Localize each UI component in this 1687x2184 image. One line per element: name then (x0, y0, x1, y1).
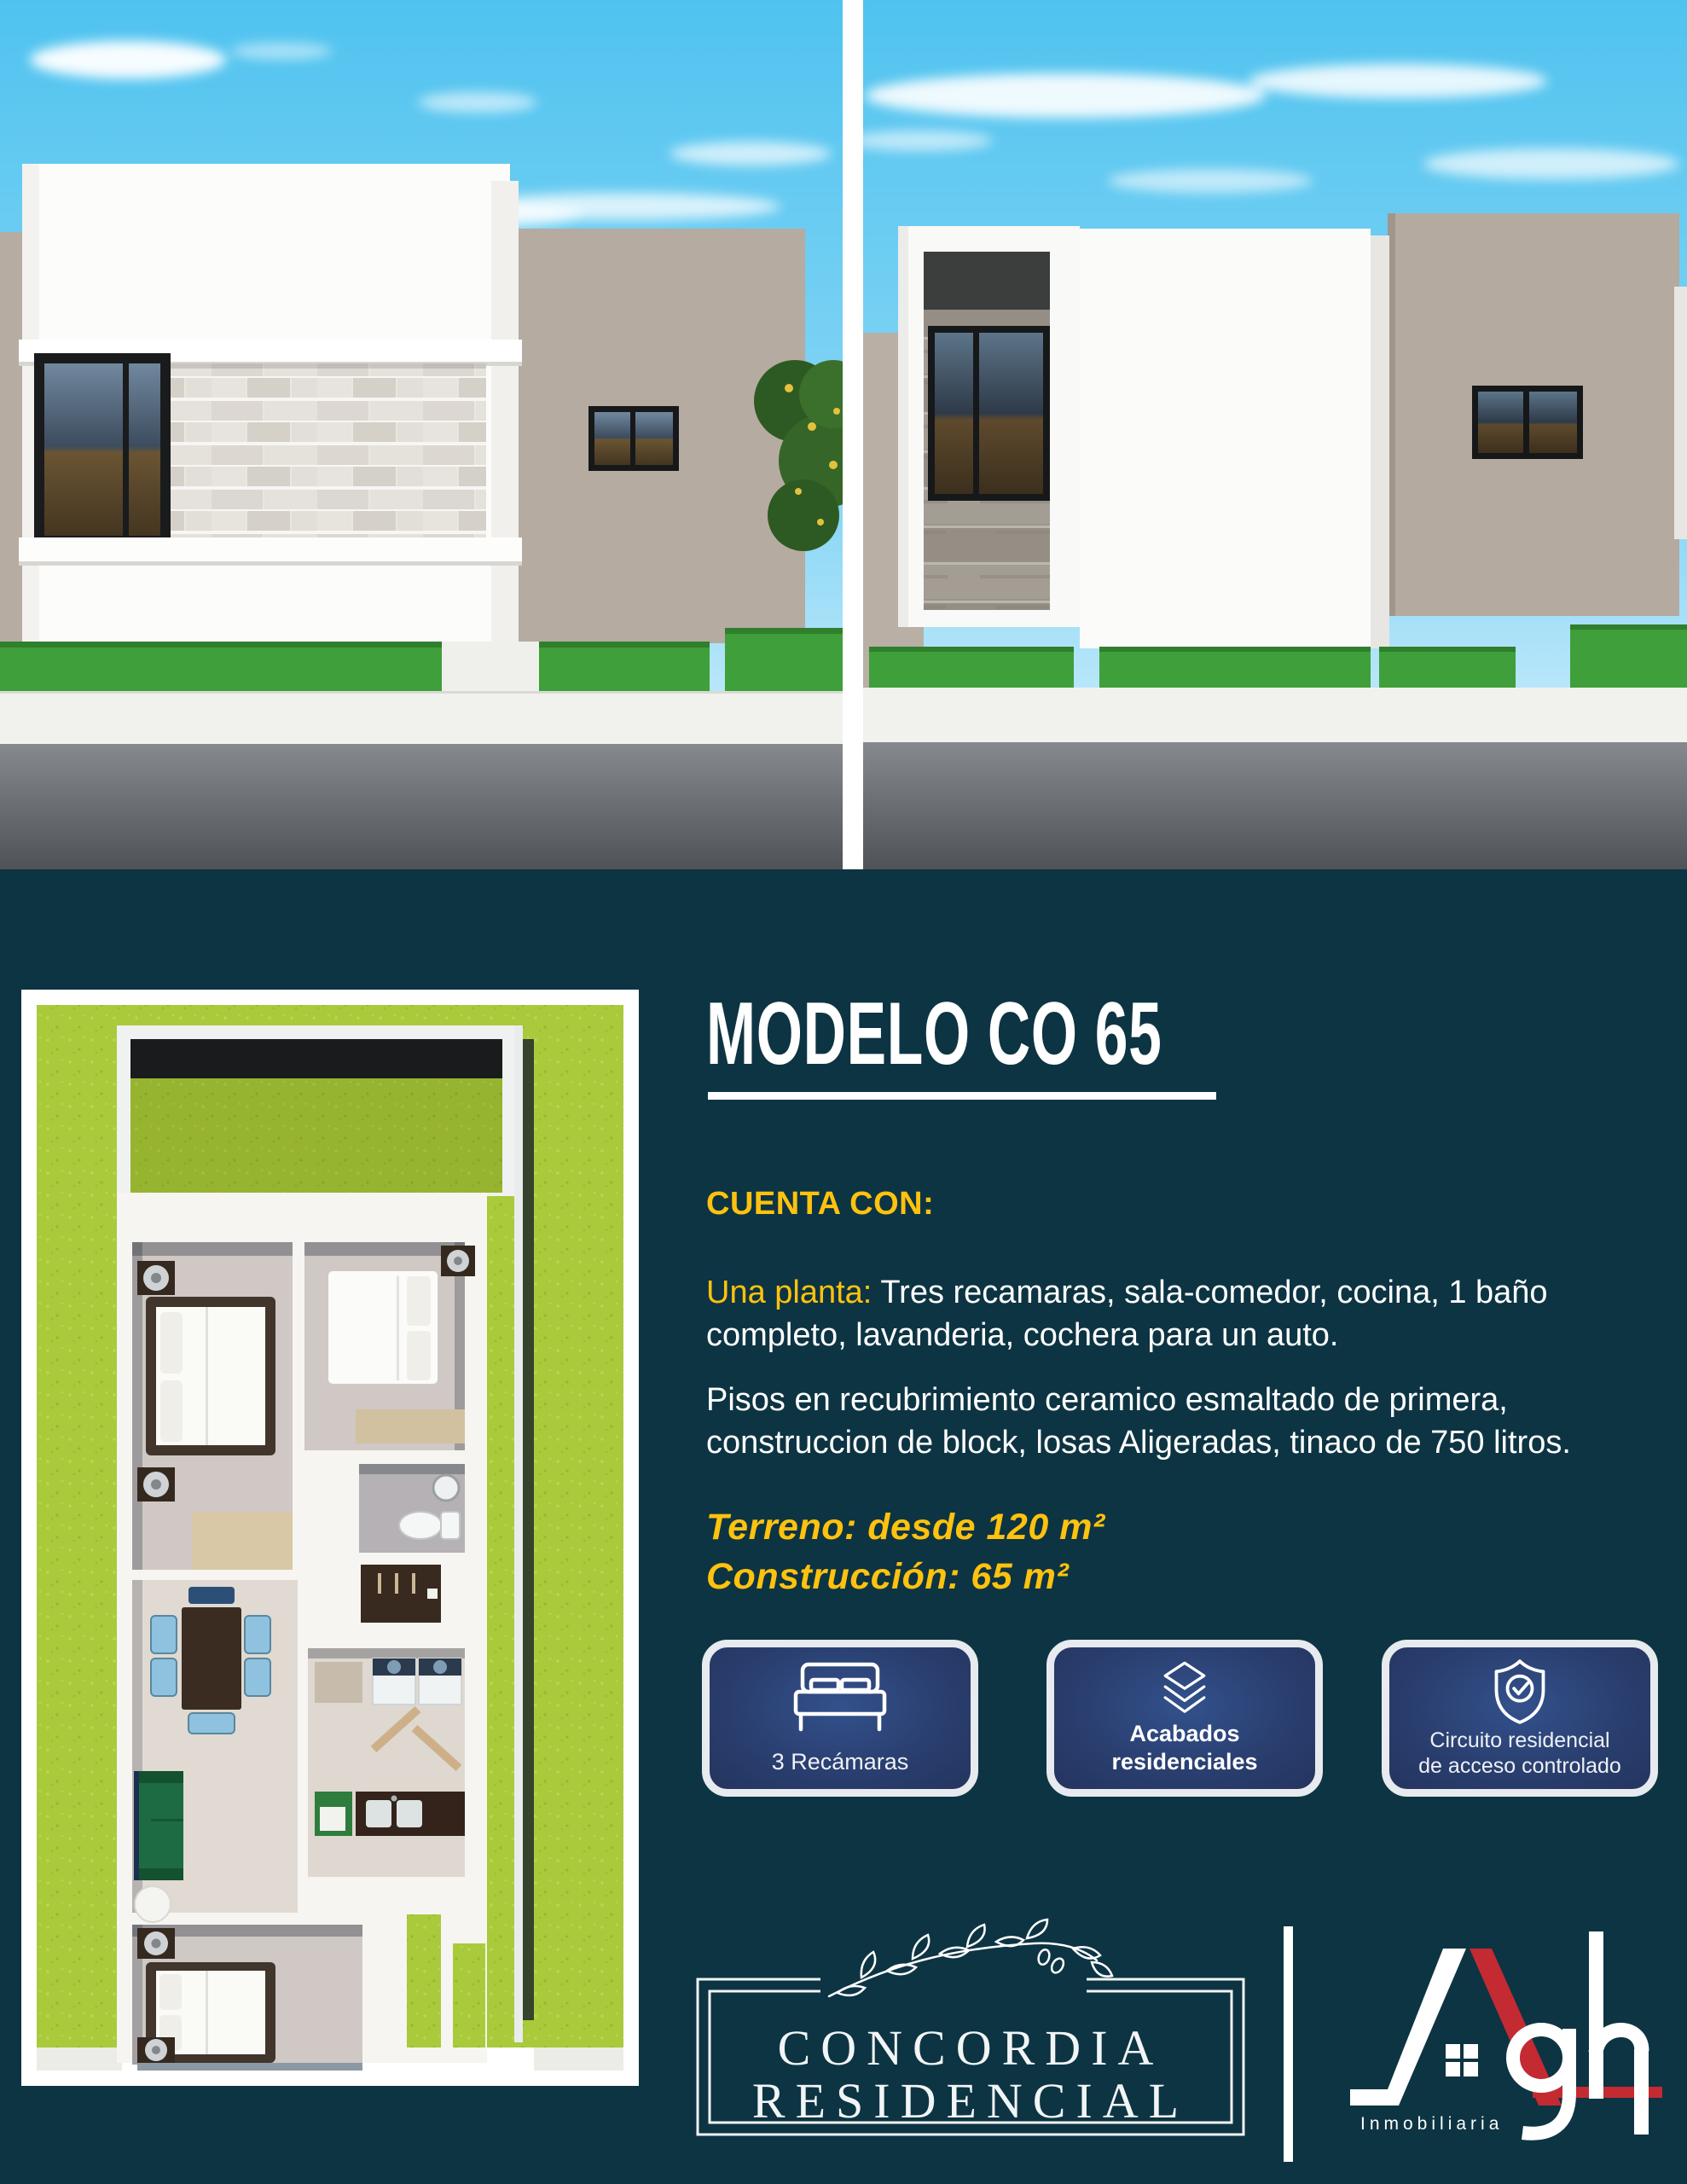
badge-security: Circuito residencialde acceso controlado (1382, 1640, 1658, 1797)
far-right-wall-sliver (1674, 287, 1687, 539)
fence-line (514, 1025, 523, 2042)
layers-icon (1134, 1659, 1235, 1720)
house-plan (117, 1025, 534, 2077)
closet (361, 1565, 441, 1623)
taupe-house (1388, 213, 1679, 616)
driveway-strip (407, 1914, 441, 2047)
driveway-strip (453, 1943, 485, 2047)
side-table (135, 1886, 171, 1922)
marble-accent-wall (169, 363, 486, 541)
bathroom (359, 1464, 465, 1553)
bed-icon (787, 1659, 893, 1741)
features-heading: CUENTA CON: (706, 1186, 934, 1223)
finishes-description: Pisos en recubrimiento ceramico esmaltad… (706, 1379, 1623, 1464)
badge-security-line1: Circuito residencial (1418, 1728, 1621, 1753)
bedroom-3 (132, 1925, 362, 2065)
fence-shadow (523, 1039, 534, 2020)
render-front-view (0, 0, 843, 869)
badge-security-label: Circuito residencialde acceso controlado (1418, 1728, 1621, 1779)
road (843, 742, 1687, 869)
living-dining (132, 1580, 298, 1922)
taupe-house (510, 229, 805, 643)
roof-strip (130, 1039, 502, 1078)
plan-description: Una planta:Tres recamaras, sala-comedor,… (706, 1271, 1623, 1356)
render-front-view-image (0, 0, 843, 869)
kitchen-laundry (308, 1648, 465, 1877)
render-photos-row (0, 0, 1687, 869)
concordia-name-line2: RESIDENCIAL (752, 2073, 1189, 2129)
construction-size: Construcción: 65 m² (706, 1556, 1069, 1598)
page-title: MODELO CO 65 (706, 990, 1162, 1078)
flyer-poster: MODELO CO 65 CUENTA CON: Una planta:Tres… (0, 0, 1687, 2184)
concordia-logo: CONCORDIA RESIDENCIAL (693, 1913, 1249, 2145)
bedroom-2 (304, 1242, 475, 1450)
footer-divider (1284, 1926, 1293, 2162)
render-perspective-view (843, 0, 1687, 869)
neighbor-wall-sliver (0, 232, 22, 642)
agh-letters (1513, 1931, 1649, 2135)
white-house (19, 164, 522, 644)
badge-finishes: Acabados residenciales (1046, 1640, 1323, 1797)
sidewalk (0, 693, 843, 744)
render-perspective-view-image (843, 0, 1687, 869)
badge-finishes-label: Acabados residenciales (1054, 1720, 1315, 1775)
agh-tagline: Inmobiliaria (1360, 2114, 1503, 2134)
sidewalk (843, 688, 1687, 742)
floor-plan-image (21, 990, 639, 2086)
title-underline (708, 1092, 1216, 1100)
sofa (134, 1771, 183, 1880)
badge-security-line2: de acceso controlado (1418, 1753, 1621, 1779)
plan-label: Una planta: (706, 1275, 872, 1310)
column-window (928, 326, 1050, 501)
lot-size: Terreno: desde 120 m² (706, 1507, 1105, 1548)
badge-bedrooms: 3 Recámaras (702, 1640, 978, 1797)
front-window (34, 353, 171, 546)
white-house (898, 226, 1389, 648)
agh-logo: Inmobiliaria (1318, 1925, 1684, 2172)
photo-divider (843, 0, 863, 869)
badge-bedrooms-label: 3 Recámaras (772, 1748, 909, 1775)
shield-check-icon (1475, 1656, 1564, 1728)
concordia-name-line1: CONCORDIA (778, 2020, 1164, 2076)
bedroom-1 (132, 1242, 293, 1570)
road (0, 744, 843, 869)
